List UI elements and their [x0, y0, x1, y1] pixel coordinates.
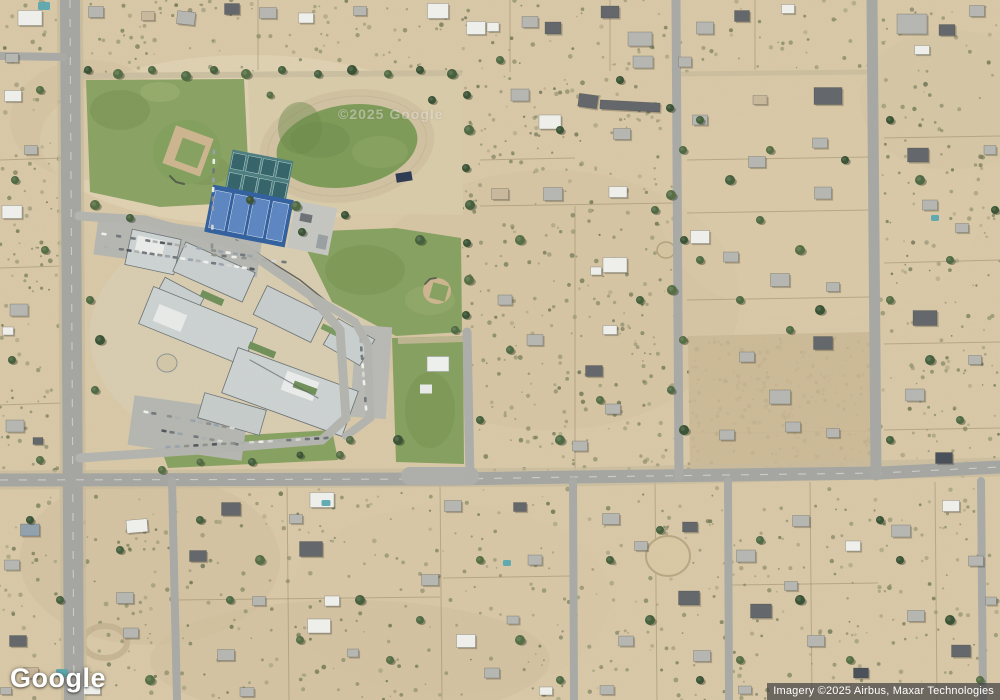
imagery-watermark: ©2025 Google — [338, 106, 444, 122]
google-logo[interactable]: Google — [10, 663, 106, 694]
satellite-imagery — [0, 0, 1000, 700]
map-canvas[interactable]: ©2025 Google Google Imagery ©2025 Airbus… — [0, 0, 1000, 700]
imagery-grain — [0, 0, 1000, 700]
attribution-text: Imagery ©2025 Airbus, Maxar Technologies — [767, 683, 1000, 700]
